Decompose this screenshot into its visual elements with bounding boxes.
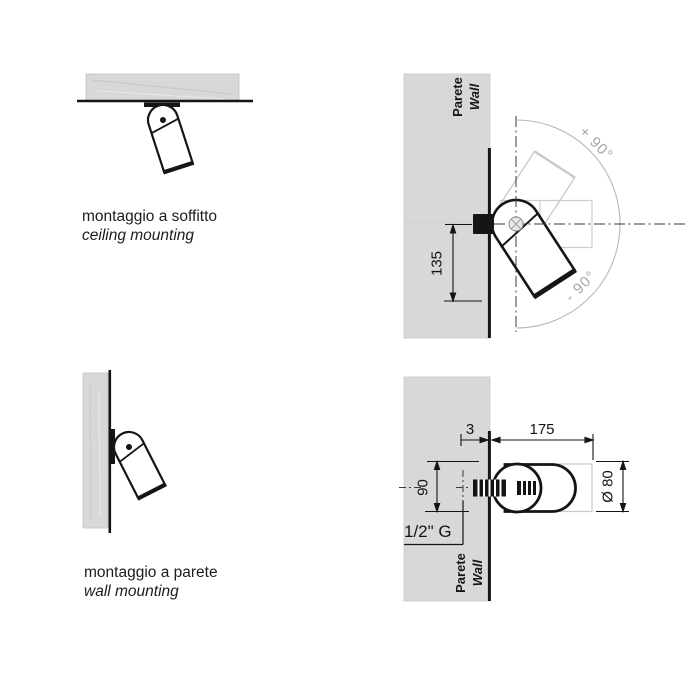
ghost-lens-edge [535, 151, 575, 177]
caption-wall-en: wall mounting [84, 582, 218, 601]
caption-wall-it: montaggio a parete [84, 563, 218, 582]
dim-label-175: 175 [520, 421, 564, 438]
threaded-stub [473, 480, 536, 497]
arrowhead [585, 437, 593, 442]
dim-label-diameter-80: Ø 80 [600, 462, 617, 512]
pivot-screw [509, 217, 523, 231]
arrowhead [492, 437, 500, 442]
wall-label-top: Parete Wall [449, 61, 485, 133]
wall-label-bottom: Parete Wall [452, 537, 488, 609]
caption-ceiling-en: ceiling mounting [82, 226, 217, 245]
caption-ceiling-it: montaggio a soffitto [82, 207, 217, 226]
spotlight-fixture-wall [108, 426, 166, 498]
dim-label-90: 90 [415, 470, 432, 506]
rotation-diagram [404, 74, 686, 338]
arrowhead [620, 504, 625, 512]
caption-ceiling-mounting: montaggio a soffitto ceiling mounting [82, 207, 217, 245]
spotlight-fixture-ceiling [143, 101, 194, 173]
arrowhead [620, 462, 625, 470]
wall-label-en: Wall [469, 537, 486, 609]
wall-label-it: Parete [452, 537, 469, 609]
caption-wall-mounting: montaggio a parete wall mounting [84, 563, 218, 601]
ceiling-mounting-diagram [77, 74, 253, 172]
spotlight-fixture-rotated [482, 190, 576, 297]
fixture-body [144, 101, 193, 172]
thread-size-label: 1/2" G [404, 522, 452, 542]
wall-label-en: Wall [466, 61, 483, 133]
dim-label-3: 3 [460, 421, 480, 438]
wall-mounting-diagram [83, 370, 166, 533]
installation-diagram-page: montaggio a soffitto ceiling mounting mo… [0, 0, 700, 700]
dim-label-135: 135 [429, 242, 446, 286]
wall-label-it: Parete [449, 61, 466, 133]
mounting-stub [473, 214, 494, 234]
dimension-diagram [399, 377, 629, 601]
wall-strip [83, 373, 108, 528]
